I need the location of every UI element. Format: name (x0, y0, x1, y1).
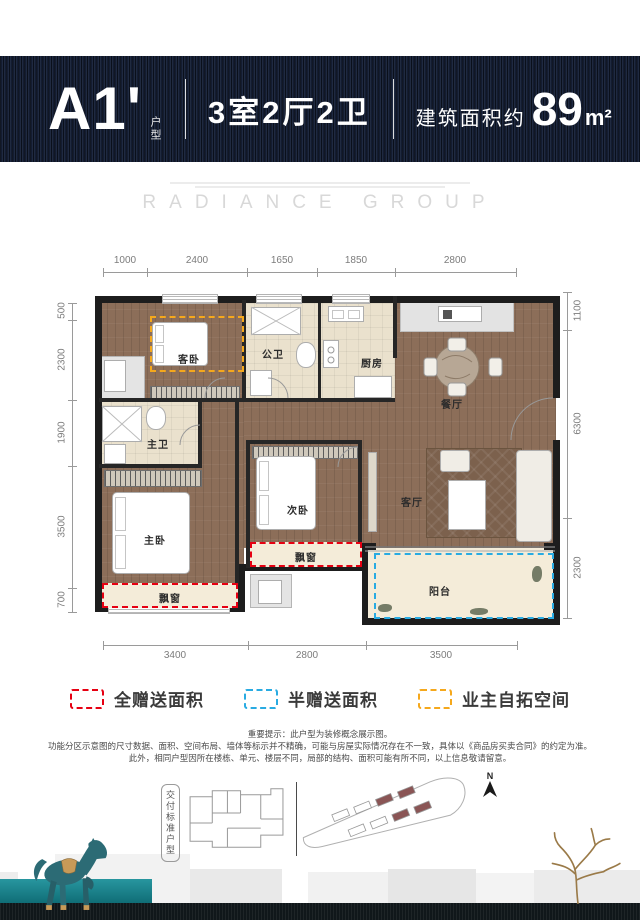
unit-code: A1' (48, 79, 142, 139)
room-label: 客厅 (401, 494, 423, 509)
building-silhouette (190, 869, 282, 903)
dimension-label: 2400 (175, 255, 219, 266)
dimension-label: 2800 (285, 650, 329, 661)
legend-item-owner-expand: 业主自拓空间 (418, 686, 570, 711)
legend-label: 业主自拓空间 (462, 686, 570, 711)
dimension-label: 2300 (57, 340, 68, 380)
dimension-label: 2800 (433, 255, 477, 266)
dimension-tick (68, 320, 77, 321)
dining-chair (424, 358, 437, 376)
footer-divider (296, 782, 297, 856)
dimension-tick (147, 268, 148, 277)
bay-window-master: 飘窗 (102, 583, 238, 608)
dimension-label: 500 (57, 291, 68, 331)
branch-decoration (532, 826, 624, 904)
room-label: 餐厅 (441, 396, 463, 411)
dimension-tick (516, 268, 517, 277)
area-group: 建筑面积约 89 m² (416, 82, 612, 136)
header-banner: A1' 户型 3室2厅2卫 建筑面积约 89 m² (0, 56, 640, 162)
dining-chair (448, 338, 466, 351)
site-plan (297, 762, 491, 869)
dimension-tick (103, 268, 104, 277)
room-label: 客卧 (178, 351, 200, 366)
fine-print-line (195, 186, 445, 188)
floorplan-poster: A1' 户型 3室2厅2卫 建筑面积约 89 m² RADIANCE GROUP… (0, 0, 640, 920)
dimension-tick (248, 641, 249, 650)
unit-type-label: 户型 (147, 116, 163, 142)
room-label: 飘窗 (252, 549, 360, 564)
dimension-line-top (103, 272, 516, 273)
dimension-tick (517, 641, 518, 650)
legend-item-full-gift: 全赠送面积 (70, 686, 204, 711)
dining-chair (448, 383, 466, 396)
header-separator (393, 79, 394, 139)
room-layout-text: 3室2厅2卫 (208, 87, 371, 132)
legend-label: 半赠送面积 (288, 686, 378, 711)
dining-chair (489, 358, 502, 376)
disclaimer-line: 此外，相同户型因所在楼栋、单元、楼层不同，局部的结构、面积可能有所不同，以上信息… (0, 752, 640, 764)
balcony-gift-zone (374, 553, 554, 619)
legend: 全赠送面积 半赠送面积 业主自拓空间 (0, 686, 640, 711)
legend-swatch-red (70, 689, 104, 709)
dimension-label: 2300 (573, 548, 584, 588)
dimension-tick (366, 641, 367, 650)
dimension-label: 6300 (573, 404, 584, 444)
dimension-tick (68, 303, 77, 304)
dimension-label: 3400 (153, 650, 197, 661)
dimension-label: 1000 (103, 255, 147, 266)
dining-table (435, 345, 479, 389)
building-silhouette (388, 869, 476, 903)
dimension-line-bottom (103, 645, 517, 646)
north-label: N (482, 772, 498, 781)
north-arrow-icon: N (482, 772, 498, 797)
dimension-tick (68, 588, 77, 589)
dimension-tick (247, 268, 248, 277)
room-label: 主卧 (144, 532, 166, 547)
bay-window-second: 飘窗 (250, 542, 362, 567)
fine-print-line (170, 182, 470, 184)
dimension-label: 1650 (260, 255, 304, 266)
disclaimer-line: 功能分区示意图的尺寸数据、面积、空间布局、墙体等标示并不精确，可能与房屋实际情况… (0, 740, 640, 752)
dimension-tick (317, 268, 318, 277)
dimension-label: 700 (57, 580, 68, 620)
legend-item-half-gift: 半赠送面积 (244, 686, 378, 711)
area-prefix: 建筑面积约 (416, 102, 526, 131)
dimension-tick (68, 400, 77, 401)
room-label: 阳台 (429, 583, 451, 598)
area-value: 89 (532, 82, 583, 136)
room-label: 主卫 (147, 436, 169, 451)
room-label: 厨房 (361, 355, 383, 370)
dimension-label: 1100 (573, 291, 584, 331)
building-silhouette (476, 873, 534, 903)
dimension-label: 3500 (57, 507, 68, 547)
legend-swatch-blue (244, 689, 278, 709)
dimension-line-left (72, 303, 73, 612)
dimension-tick (68, 612, 77, 613)
dimension-tick (395, 268, 396, 277)
disclaimer: 重要提示：此户型为装修概念展示图。 功能分区示意图的尺寸数据、面积、空间布局、墙… (0, 728, 640, 764)
dimension-tick (68, 466, 77, 467)
room-label: 飘窗 (104, 590, 236, 605)
header-separator (185, 79, 186, 139)
brand-watermark: RADIANCE GROUP (0, 192, 640, 214)
dimension-label: 1900 (57, 413, 68, 453)
legend-swatch-orange (418, 689, 452, 709)
area-unit: m² (585, 105, 612, 131)
disclaimer-line: 重要提示：此户型为装修概念展示图。 (0, 728, 640, 740)
horse-statue-image (25, 832, 121, 914)
legend-label: 全赠送面积 (114, 686, 204, 711)
dimension-tick (103, 641, 104, 650)
room-label: 次卧 (287, 502, 309, 517)
dimension-label: 3500 (419, 650, 463, 661)
room-label: 公卫 (262, 346, 284, 361)
thumbnail-floorplan (182, 782, 288, 856)
delivery-standard-label: 交付标准户型 (161, 784, 180, 862)
dimension-label: 1850 (334, 255, 378, 266)
